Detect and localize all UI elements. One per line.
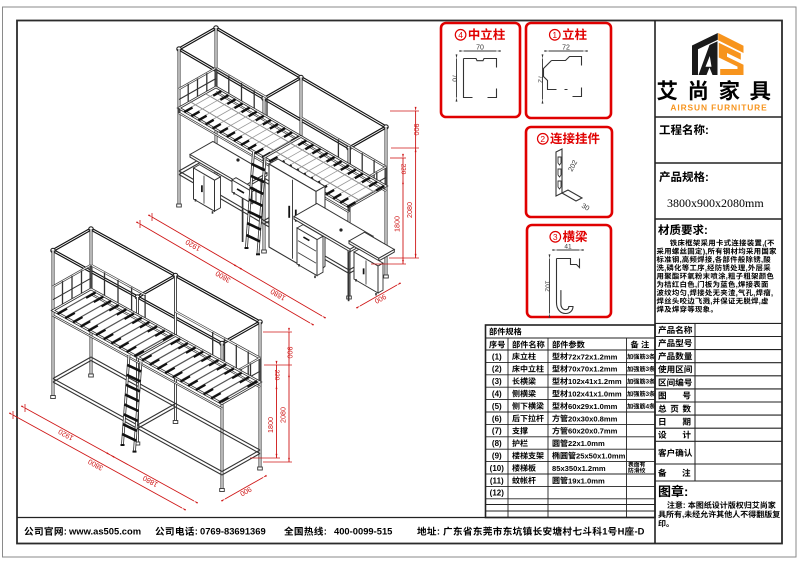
svg-text:(10): (10) (490, 464, 505, 473)
svg-text:H: H (618, 526, 625, 537)
svg-text:(2): (2) (492, 365, 502, 374)
svg-text::: : (437, 526, 440, 537)
svg-text:,: , (695, 280, 697, 289)
svg-text::: : (684, 484, 688, 499)
svg-text:22x1.0mm: 22x1.0mm (568, 439, 605, 448)
svg-text:0769-83691369: 0769-83691369 (200, 526, 266, 537)
svg-text:220: 220 (273, 370, 280, 381)
svg-text:(5): (5) (492, 402, 502, 411)
svg-text:,: , (746, 263, 748, 272)
svg-text:102x41x1.2mm: 102x41x1.2mm (568, 377, 622, 386)
svg-text:(11): (11) (490, 476, 504, 485)
svg-text:,: , (759, 297, 761, 306)
svg-text:),: ), (703, 247, 707, 256)
svg-text:1: 1 (602, 526, 607, 537)
svg-text:72x72x1.2mm: 72x72x1.2mm (568, 352, 618, 361)
svg-text:2: 2 (540, 134, 545, 144)
svg-text:,(: ,( (762, 239, 767, 248)
svg-text:3800x900x2080mm: 3800x900x2080mm (667, 196, 764, 210)
svg-text:3800: 3800 (214, 269, 232, 285)
svg-text:70: 70 (451, 74, 458, 82)
svg-text:(8): (8) (492, 439, 502, 448)
svg-text:4: 4 (458, 30, 463, 40)
svg-text:1800: 1800 (393, 216, 402, 232)
svg-text:,: , (713, 255, 715, 264)
svg-text:,: , (753, 288, 755, 297)
svg-text:900: 900 (286, 347, 295, 359)
svg-text:(3): (3) (492, 377, 502, 386)
svg-text:60x20x0.7mm: 60x20x0.7mm (568, 427, 618, 436)
svg-text:-D: -D (635, 526, 645, 537)
svg-text:(6): (6) (492, 414, 502, 423)
svg-text:400-0099-515: 400-0099-515 (334, 526, 392, 537)
svg-text:,: , (771, 288, 773, 297)
svg-text:,: , (705, 263, 707, 272)
svg-text:2080: 2080 (279, 407, 288, 423)
svg-text:,: , (682, 510, 684, 519)
svg-text::: : (195, 526, 198, 537)
svg-text:,: , (736, 288, 738, 297)
svg-text::: : (324, 526, 327, 537)
svg-text::: : (705, 125, 709, 137)
svg-text:3: 3 (646, 366, 650, 373)
svg-text:(7): (7) (492, 427, 502, 436)
svg-text:2080: 2080 (405, 202, 414, 218)
svg-text:1800: 1800 (266, 417, 275, 433)
svg-text:72: 72 (537, 75, 544, 83)
svg-text:3: 3 (646, 354, 650, 361)
svg-text:85x350x1.2mm: 85x350x1.2mm (552, 464, 606, 473)
svg-text:,: , (726, 272, 728, 281)
svg-text::: : (704, 225, 708, 237)
svg-text:,: , (680, 255, 682, 264)
svg-text:19x1.0mm: 19x1.0mm (568, 476, 605, 485)
svg-text:3800: 3800 (86, 457, 104, 473)
svg-text:(1): (1) (492, 352, 502, 361)
svg-text:102: 102 (544, 280, 551, 292)
svg-text:AIRSUN FURNITURE: AIRSUN FURNITURE (670, 103, 767, 113)
svg-text:3: 3 (553, 232, 558, 242)
svg-text:,: , (761, 255, 763, 264)
svg-text:70x70x1.2mm: 70x70x1.2mm (568, 365, 618, 374)
svg-text:72: 72 (562, 45, 570, 52)
svg-text:20x30x0.8mm: 20x30x0.8mm (568, 414, 618, 423)
svg-text::: : (705, 172, 709, 184)
svg-text:3: 3 (646, 379, 650, 386)
svg-text:60x29x1.0mm: 60x29x1.0mm (568, 402, 618, 411)
svg-text:41: 41 (564, 244, 572, 251)
svg-text:(12): (12) (490, 489, 505, 498)
svg-text:102x41x1.0mm: 102x41x1.0mm (568, 390, 622, 399)
svg-text:www.as505.com: www.as505.com (68, 526, 141, 537)
svg-text:(4): (4) (492, 390, 502, 399)
svg-text:900: 900 (238, 485, 253, 499)
svg-text:4: 4 (646, 403, 650, 410)
svg-text::: : (64, 526, 67, 537)
svg-text:,: , (664, 263, 666, 272)
svg-text::: : (683, 501, 686, 510)
svg-text:1: 1 (552, 30, 557, 40)
svg-text:3: 3 (646, 391, 650, 398)
svg-text:(9): (9) (492, 452, 502, 461)
svg-text:900: 900 (412, 124, 421, 136)
svg-text:25x50x1.0mm: 25x50x1.0mm (576, 452, 626, 461)
svg-text:,: , (687, 288, 689, 297)
svg-text:,: , (710, 297, 712, 306)
svg-text:220: 220 (400, 164, 407, 175)
svg-text:70: 70 (476, 45, 484, 52)
